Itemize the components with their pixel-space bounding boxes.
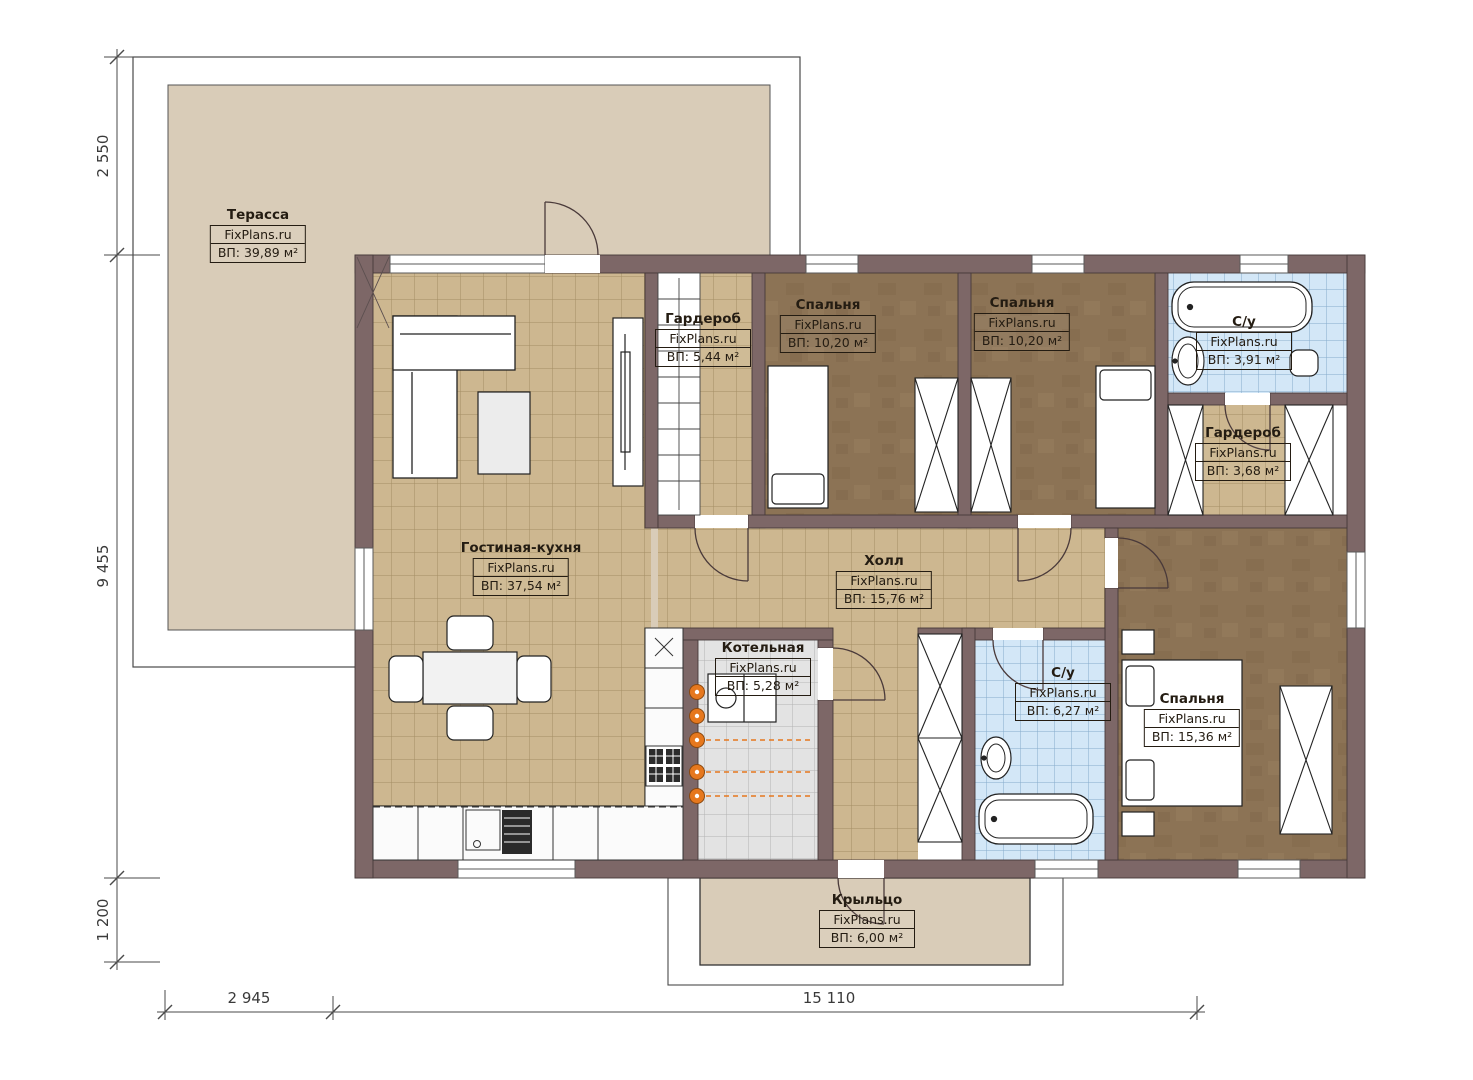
room-label-boiler: Котельная FixPlans.ru ВП: 5,28 м² — [715, 641, 811, 696]
brand-watermark: FixPlans.ru — [1016, 684, 1110, 702]
room-area: ВП: 3,68 м² — [1196, 461, 1290, 480]
brand-watermark: FixPlans.ru — [1197, 333, 1291, 351]
room-area: ВП: 10,20 м² — [975, 331, 1069, 350]
room-name: С/у — [1015, 666, 1111, 681]
room-name: Крыльцо — [819, 893, 915, 908]
dimension-label-1200: 1 200 — [94, 899, 112, 942]
room-label-porch: Крыльцо FixPlans.ru ВП: 6,00 м² — [819, 893, 915, 948]
room-name: Терасса — [210, 208, 306, 223]
sink-bath2 — [981, 737, 1011, 779]
room-label-living: Гостиная-кухня FixPlans.ru ВП: 37,54 м² — [461, 541, 582, 596]
room-area: ВП: 5,44 м² — [656, 347, 750, 366]
room-name: Спальня — [780, 298, 876, 313]
room-area: ВП: 10,20 м² — [781, 333, 875, 352]
brand-watermark: FixPlans.ru — [781, 316, 875, 334]
brand-watermark: FixPlans.ru — [211, 226, 305, 244]
room-area: ВП: 5,28 м² — [716, 676, 810, 695]
dimension-label-15110: 15 110 — [803, 989, 856, 1007]
bed-bedroom1 — [768, 366, 828, 508]
brand-watermark: FixPlans.ru — [716, 659, 810, 677]
brand-watermark: FixPlans.ru — [1196, 444, 1290, 462]
stove — [646, 746, 682, 786]
room-name: Гардероб — [1195, 426, 1291, 441]
room-area: ВП: 6,00 м² — [820, 928, 914, 947]
brand-watermark: FixPlans.ru — [656, 330, 750, 348]
brand-watermark: FixPlans.ru — [1145, 710, 1239, 728]
dimension-line-left — [104, 49, 160, 970]
kitchen-sink — [466, 810, 500, 850]
room-label-bedroom2: Спальня FixPlans.ru ВП: 10,20 м² — [974, 296, 1070, 351]
dimension-line-bottom — [157, 990, 1205, 1020]
tv-stand — [613, 318, 643, 486]
bathtub-bath2 — [979, 794, 1093, 844]
toilet-bath1 — [1290, 350, 1318, 376]
room-label-bedroom1: Спальня FixPlans.ru ВП: 10,20 м² — [780, 298, 876, 353]
room-area: ВП: 15,76 м² — [837, 589, 931, 608]
dimension-label-2945: 2 945 — [228, 989, 271, 1007]
kitchen-appliance — [502, 810, 532, 854]
floor-plan-drawing: 2 550 9 455 1 200 2 945 15 110 — [0, 0, 1473, 1080]
room-name: Котельная — [715, 641, 811, 656]
coffee-table — [478, 392, 530, 474]
room-area: ВП: 6,27 м² — [1016, 701, 1110, 720]
brand-watermark: FixPlans.ru — [837, 572, 931, 590]
room-label-hall: Холл FixPlans.ru ВП: 15,76 м² — [836, 554, 932, 609]
bed-bedroom2 — [1096, 366, 1155, 508]
room-area: ВП: 3,91 м² — [1197, 350, 1291, 369]
brand-watermark: FixPlans.ru — [474, 559, 568, 577]
dimension-label-9455: 9 455 — [94, 545, 112, 588]
dimension-label-2550: 2 550 — [94, 135, 112, 178]
room-area: ВП: 39,89 м² — [211, 243, 305, 262]
room-name: Спальня — [1144, 692, 1240, 707]
hall-wardrobe-unit — [918, 634, 962, 842]
room-label-wardrobe1: Гардероб FixPlans.ru ВП: 5,44 м² — [655, 312, 751, 367]
room-name: Гардероб — [655, 312, 751, 327]
room-area: ВП: 15,36 м² — [1145, 727, 1239, 746]
closet-shelves — [658, 273, 700, 515]
wardrobe1-floor — [700, 273, 752, 515]
room-label-bath2: С/у FixPlans.ru ВП: 6,27 м² — [1015, 666, 1111, 721]
wardrobe-unit-bedroom1 — [915, 378, 958, 512]
room-area: ВП: 37,54 м² — [474, 576, 568, 595]
room-label-bath1: С/у FixPlans.ru ВП: 3,91 м² — [1196, 315, 1292, 370]
room-name: Спальня — [974, 296, 1070, 311]
entry-corridor-floor — [833, 628, 918, 860]
room-name: С/у — [1196, 315, 1292, 330]
floor-plan-canvas: 2 550 9 455 1 200 2 945 15 110 Терасса F… — [0, 0, 1473, 1080]
room-label-bedroom3: Спальня FixPlans.ru ВП: 15,36 м² — [1144, 692, 1240, 747]
room-label-wardrobe2: Гардероб FixPlans.ru ВП: 3,68 м² — [1195, 426, 1291, 481]
room-name: Гостиная-кухня — [461, 541, 582, 556]
brand-watermark: FixPlans.ru — [975, 314, 1069, 332]
brand-watermark: FixPlans.ru — [820, 911, 914, 929]
wardrobe-unit-bedroom3 — [1280, 686, 1332, 834]
room-name: Холл — [836, 554, 932, 569]
room-label-terrace: Терасса FixPlans.ru ВП: 39,89 м² — [210, 208, 306, 263]
wardrobe-unit-bedroom2 — [971, 378, 1011, 512]
